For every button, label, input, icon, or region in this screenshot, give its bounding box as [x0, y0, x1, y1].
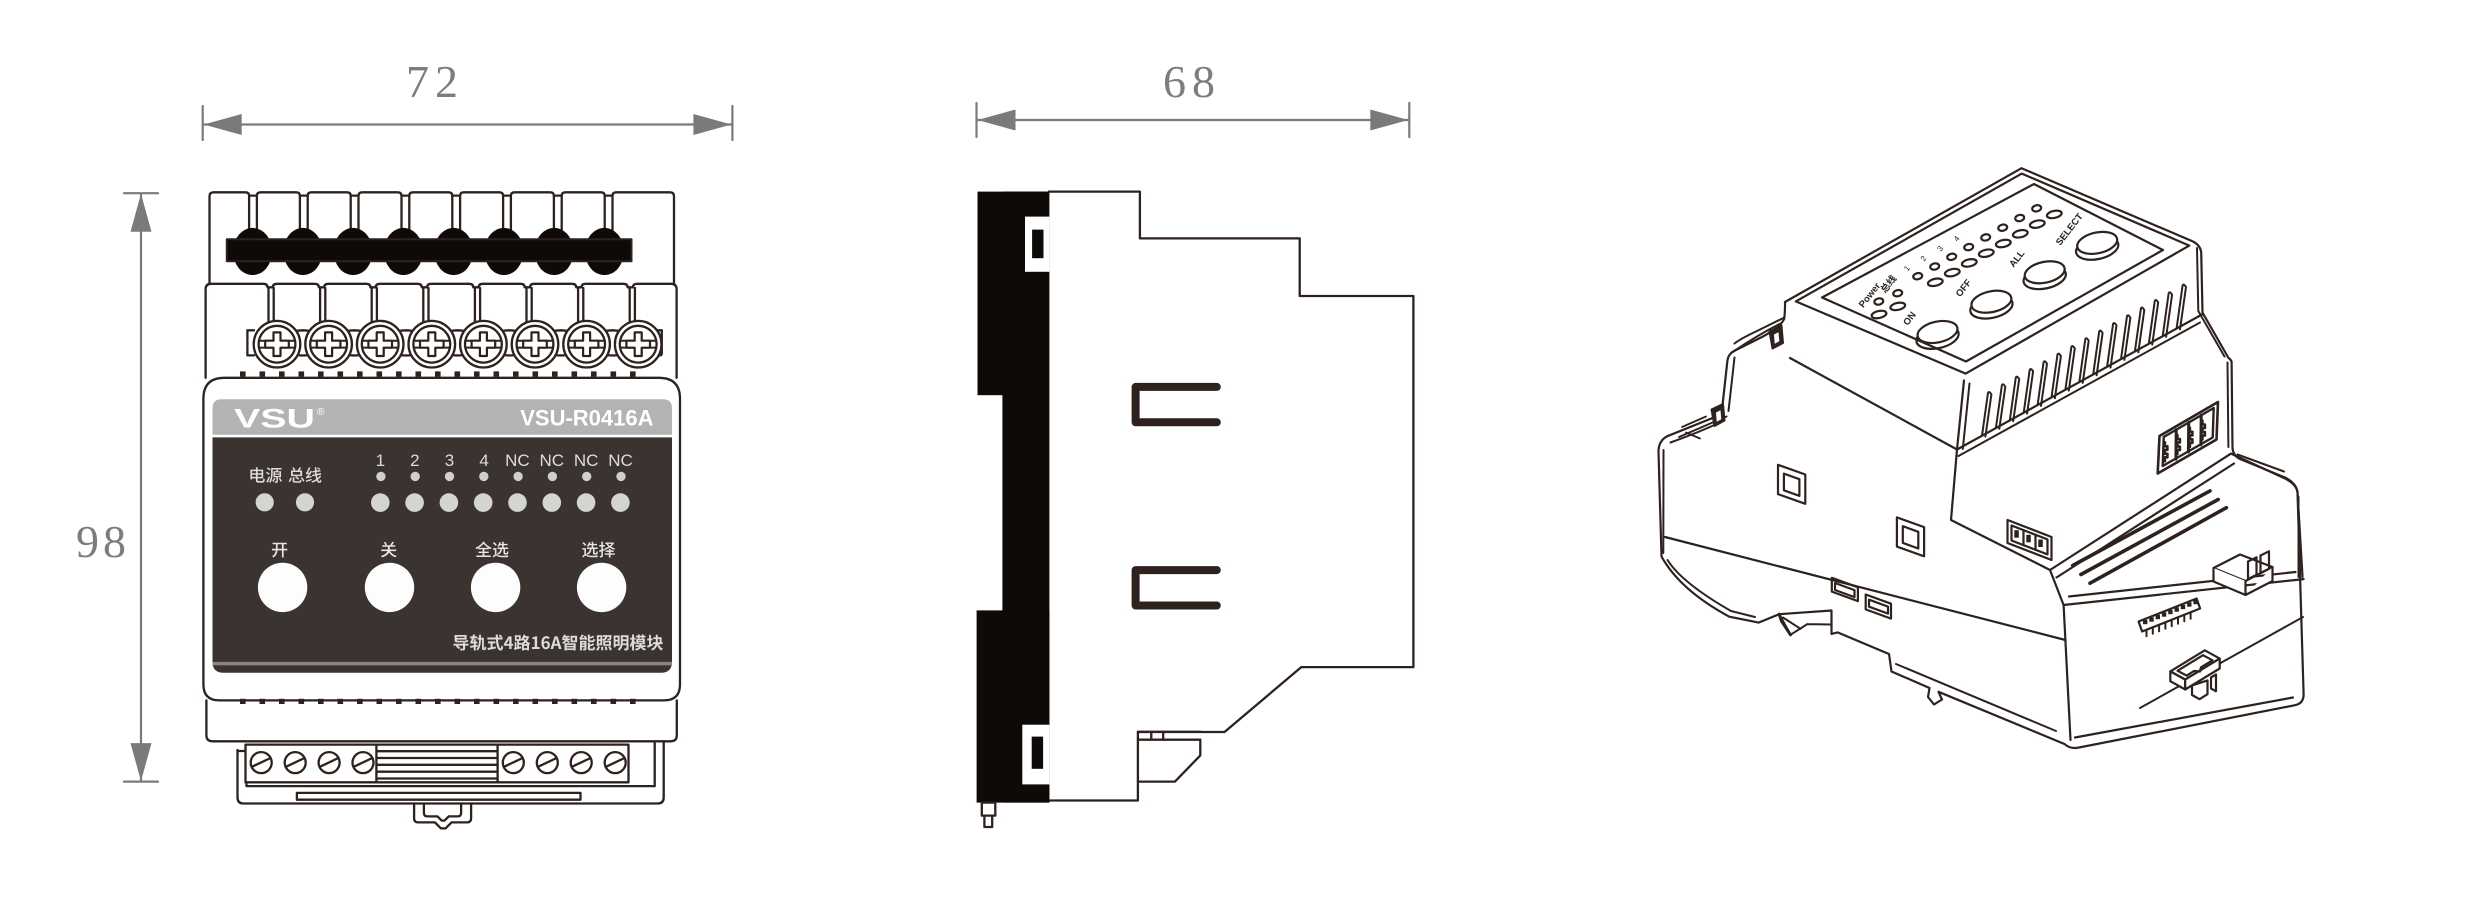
svg-text:VSU-R0416A: VSU-R0416A [520, 405, 653, 430]
svg-text:NC: NC [505, 451, 530, 470]
svg-text:NC: NC [574, 451, 599, 470]
svg-text:4: 4 [479, 451, 488, 470]
svg-text:1: 1 [376, 451, 385, 470]
svg-text:72: 72 [406, 56, 464, 107]
svg-text:VSU: VSU [234, 403, 315, 433]
svg-text:2: 2 [410, 451, 419, 470]
svg-text:68: 68 [1163, 56, 1221, 107]
svg-text:98: 98 [76, 516, 130, 567]
svg-text:NC: NC [608, 451, 633, 470]
svg-text:3: 3 [445, 451, 454, 470]
svg-text:NC: NC [540, 451, 565, 470]
svg-text:®: ® [317, 406, 325, 418]
